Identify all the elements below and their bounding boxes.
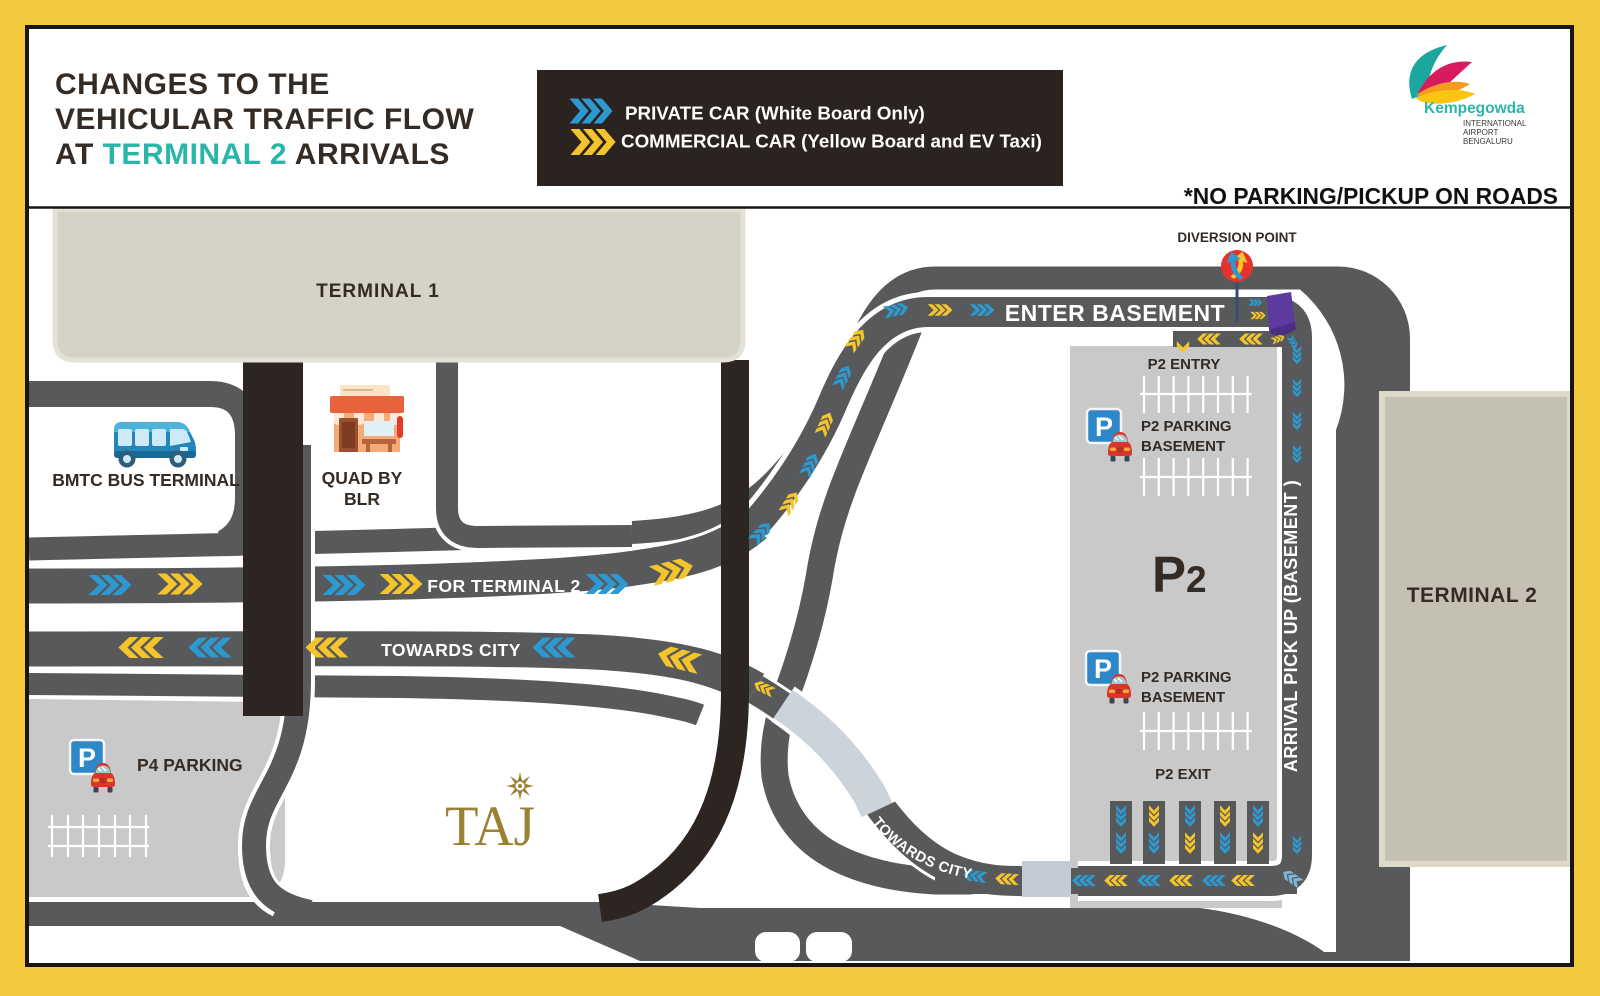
svg-text:ARRIVAL PICK UP (BASEMENT ): ARRIVAL PICK UP (BASEMENT ) bbox=[1281, 480, 1301, 773]
svg-text:P2 EXIT: P2 EXIT bbox=[1155, 766, 1211, 783]
svg-text:TOWARDS CITY: TOWARDS CITY bbox=[381, 640, 521, 660]
svg-text:BASEMENT: BASEMENT bbox=[1141, 689, 1225, 706]
svg-text:TAJ: TAJ bbox=[445, 795, 535, 858]
svg-text:BENGALURU: BENGALURU bbox=[1463, 137, 1513, 146]
svg-text:BASEMENT: BASEMENT bbox=[1141, 438, 1225, 455]
svg-text:P2 PARKING: P2 PARKING bbox=[1141, 669, 1232, 686]
svg-text:TERMINAL 1: TERMINAL 1 bbox=[316, 281, 440, 302]
svg-text:ENTER BASEMENT: ENTER BASEMENT bbox=[1005, 300, 1225, 326]
svg-text:*NO PARKING/PICKUP ON ROADS: *NO PARKING/PICKUP ON ROADS bbox=[1184, 183, 1558, 209]
svg-text:AT TERMINAL 2 ARRIVALS: AT TERMINAL 2 ARRIVALS bbox=[55, 138, 450, 171]
svg-text:P2 PARKING: P2 PARKING bbox=[1141, 418, 1232, 435]
svg-text:INTERNATIONAL: INTERNATIONAL bbox=[1463, 119, 1527, 128]
svg-text:CHANGES TO THE: CHANGES TO THE bbox=[55, 68, 330, 101]
svg-text:COMMERCIAL CAR (Yellow Board a: COMMERCIAL CAR (Yellow Board and EV Taxi… bbox=[621, 131, 1042, 152]
svg-text:P2 ENTRY: P2 ENTRY bbox=[1148, 356, 1221, 373]
svg-text:VEHICULAR TRAFFIC FLOW: VEHICULAR TRAFFIC FLOW bbox=[55, 103, 474, 136]
svg-text:BMTC BUS TERMINAL: BMTC BUS TERMINAL bbox=[52, 470, 240, 490]
svg-text:QUAD BY: QUAD BY bbox=[322, 468, 403, 488]
svg-text:AIRPORT: AIRPORT bbox=[1463, 128, 1499, 137]
svg-text:FOR TERMINAL 2: FOR TERMINAL 2 bbox=[427, 576, 581, 596]
svg-text:BLR: BLR bbox=[344, 489, 380, 509]
svg-text:TERMINAL 2: TERMINAL 2 bbox=[1407, 584, 1538, 607]
svg-text:Kempegowda: Kempegowda bbox=[1424, 100, 1525, 117]
svg-text:DIVERSION POINT: DIVERSION POINT bbox=[1177, 230, 1297, 245]
svg-text:PRIVATE CAR (White Board Only): PRIVATE CAR (White Board Only) bbox=[625, 103, 925, 124]
svg-text:P4 PARKING: P4 PARKING bbox=[137, 755, 243, 775]
